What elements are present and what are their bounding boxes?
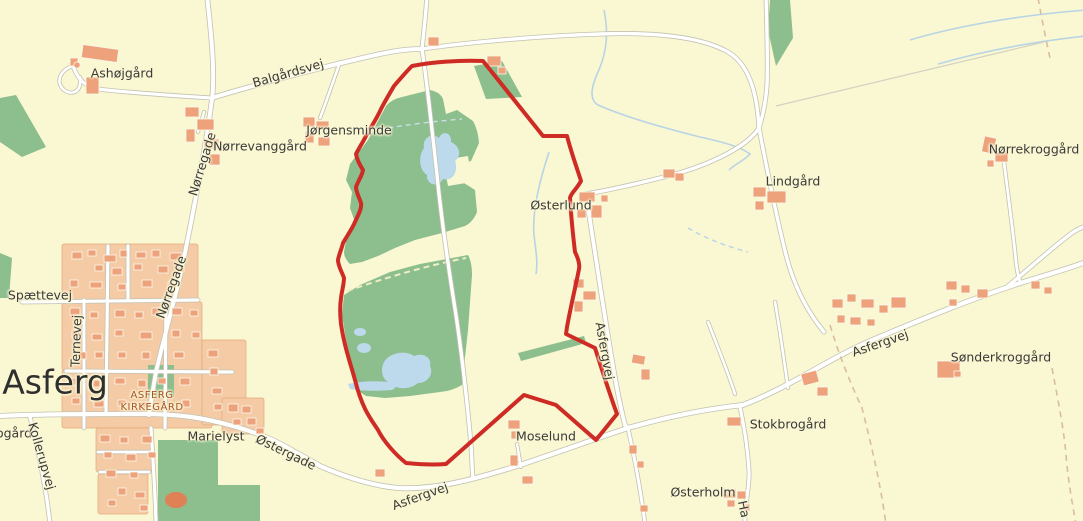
building [891,297,906,308]
building [675,173,684,181]
building [135,312,143,318]
building [94,400,104,407]
building [174,352,184,358]
building [92,380,100,387]
building [303,117,315,127]
building [86,77,99,94]
building [601,195,608,202]
building [981,136,996,154]
building [233,419,241,425]
building [90,282,102,288]
building [100,435,110,442]
building [140,332,152,339]
building [1044,287,1052,294]
road-24 [165,300,166,428]
building [115,330,123,336]
building [168,282,176,288]
building [850,317,861,325]
building [180,378,190,385]
road-25 [22,300,198,302]
stream-topright-1 [910,10,1083,40]
building [583,291,596,300]
building [767,191,786,203]
building [142,352,150,359]
building [70,280,78,287]
building [987,160,994,167]
grove-left-sliver [0,253,12,298]
building [140,505,148,511]
meadow-pond-tiny [354,328,366,336]
building [737,491,746,499]
stream-osterlund [534,152,549,274]
building [318,137,330,146]
road-22 [106,246,108,413]
building [148,452,156,458]
building [723,489,736,498]
building [72,398,80,404]
building [214,404,222,410]
building [72,330,80,338]
building [95,265,103,271]
building [118,400,126,406]
building [212,388,222,394]
building [158,266,168,273]
building [170,253,182,260]
building [256,428,264,434]
building [375,469,385,477]
building [522,476,533,484]
building [138,380,146,387]
building [574,301,583,312]
building [120,437,128,443]
building [140,402,150,408]
building [637,461,644,468]
building [995,151,1008,162]
drain-dashed [688,228,748,252]
building [104,452,112,458]
sports-field-east [218,485,260,521]
dashed-track-2 [1052,368,1076,521]
building [242,406,251,413]
building [949,299,957,306]
building [135,492,145,498]
building [176,266,184,272]
building [95,352,103,358]
building [961,285,970,293]
building [142,436,152,443]
dashed-track-3 [1038,0,1050,58]
building [106,470,116,477]
building [743,504,750,511]
building [228,404,238,412]
building [112,268,122,275]
grove-topright-strip [768,0,793,66]
building [190,310,198,316]
building [727,500,735,507]
sports-field [158,440,218,521]
building [182,400,190,407]
building [663,169,675,178]
road-10 [586,194,628,428]
building [118,352,126,358]
building [591,205,602,218]
road-9 [759,128,824,332]
building [70,308,80,315]
building [158,378,166,384]
road-15 [1004,162,1020,282]
building [104,255,116,262]
silo [74,62,80,68]
building [134,264,142,270]
map-canvas[interactable]: AshøjgårdBalgårdsvejNørregadeNørrevanggå… [0,0,1083,521]
building [755,201,764,210]
building [209,154,220,165]
building [511,431,520,439]
building [118,488,126,495]
building [510,455,518,466]
building [577,209,586,218]
building [115,378,125,384]
road-12 [30,417,50,521]
road-17 [708,322,735,394]
building [197,119,214,130]
building [847,294,856,302]
building [70,378,80,385]
building [118,284,126,290]
building [946,281,957,290]
road-6 [422,34,759,128]
building [753,187,766,197]
building [172,308,182,315]
road-casing-6 [422,34,759,128]
building [641,369,650,380]
road-casing-8 [586,128,759,194]
building [498,67,506,74]
building [136,252,146,258]
grove-topleft [0,95,46,157]
building [172,330,180,337]
building [629,445,637,454]
building [74,352,86,359]
building [305,131,314,143]
building [316,121,329,130]
building [487,56,501,66]
sports-track-oval [165,492,187,508]
meadow-pond-small [357,343,371,353]
building [130,472,138,478]
road-casing-9 [759,128,824,332]
building [1031,281,1040,289]
building [640,505,648,512]
building [152,250,160,257]
building [72,252,82,259]
building [186,129,195,142]
building [861,299,874,308]
building [832,299,843,308]
building [88,250,96,256]
building [210,368,218,375]
building [81,45,118,63]
building [192,332,200,338]
building [579,192,595,202]
building [152,308,162,315]
building [837,315,845,323]
road-26 [66,371,232,372]
building [115,310,125,317]
building [954,371,961,377]
road-8 [586,128,759,194]
building [208,350,218,357]
map-graphics [0,0,1083,521]
building [126,454,136,461]
building [108,500,116,506]
building [817,387,828,396]
building [977,289,988,298]
building [727,417,741,426]
building [631,354,645,365]
building [879,305,888,313]
building [185,107,199,117]
field-line [776,42,1044,106]
building [508,420,520,429]
building [120,250,127,257]
road-18 [775,302,788,388]
building [142,280,152,287]
building [867,319,875,326]
building [428,37,439,46]
building [92,334,102,340]
building [90,312,98,318]
building [247,418,256,425]
building [204,139,219,149]
